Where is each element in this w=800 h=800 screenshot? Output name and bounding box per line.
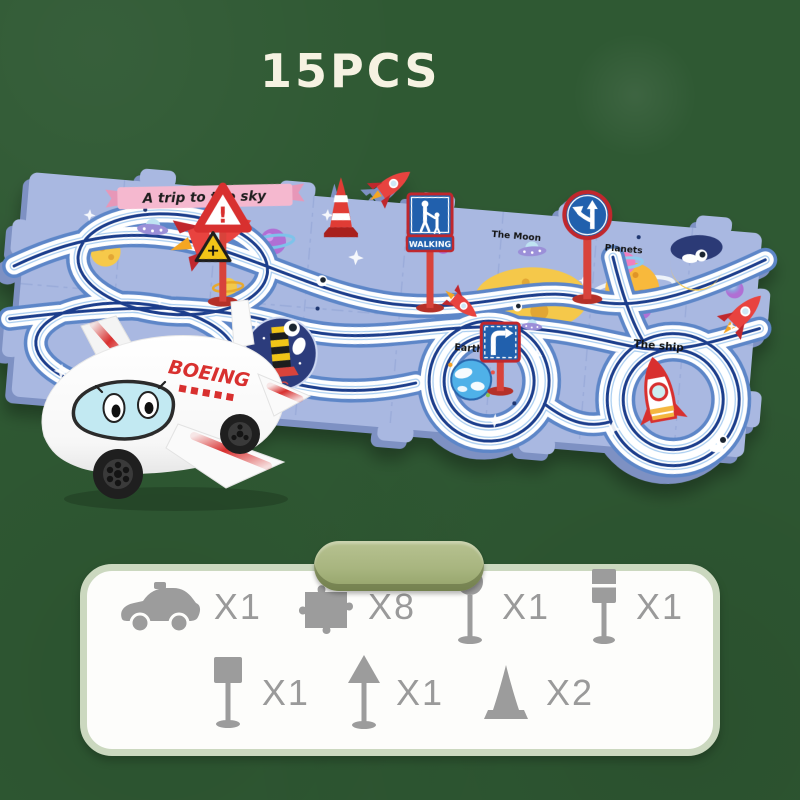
page-title: 15PCS <box>260 44 440 98</box>
front-wheel <box>93 449 143 499</box>
part-count: X1 <box>396 672 444 714</box>
part-square-sign: X1 <box>206 654 310 732</box>
traffic-cone-icon <box>478 661 534 725</box>
car-icon <box>116 578 202 636</box>
plane-shadow <box>64 487 288 511</box>
tail-fin <box>231 300 254 348</box>
label-earth: Earth <box>454 342 484 355</box>
square-sign-icon <box>206 654 250 732</box>
parts-list-panel: X1 X8 X1 X1 <box>80 564 720 756</box>
part-count: X1 <box>262 672 310 714</box>
label-the-moon: The Moon <box>491 230 541 244</box>
banner-ribbon: A trip to the sky <box>105 183 304 209</box>
part-count: X1 <box>636 586 684 628</box>
svg-text:WALKING: WALKING <box>409 240 451 249</box>
signal-sign-icon <box>584 567 624 647</box>
part-triangle-sign: X1 <box>344 653 444 733</box>
part-count: X8 <box>368 586 416 628</box>
toy-airplane: BOEING <box>26 296 318 514</box>
part-count: X2 <box>546 672 594 714</box>
svg-text:A trip to the sky: A trip to the sky <box>142 188 268 207</box>
part-count: X1 <box>214 586 262 628</box>
parts-row-2: X1 X1 X2 <box>113 653 687 733</box>
rear-wheel <box>220 414 260 454</box>
svg-text:+: + <box>206 241 219 260</box>
traffic-cone <box>324 177 358 237</box>
part-traffic-cone: X2 <box>478 661 594 725</box>
triangle-sign-icon <box>344 653 384 733</box>
svg-text:!: ! <box>218 204 228 229</box>
pill-tab <box>314 541 484 591</box>
part-car: X1 <box>116 578 262 636</box>
part-count: X1 <box>502 586 550 628</box>
part-signal-sign: X1 <box>584 567 684 647</box>
